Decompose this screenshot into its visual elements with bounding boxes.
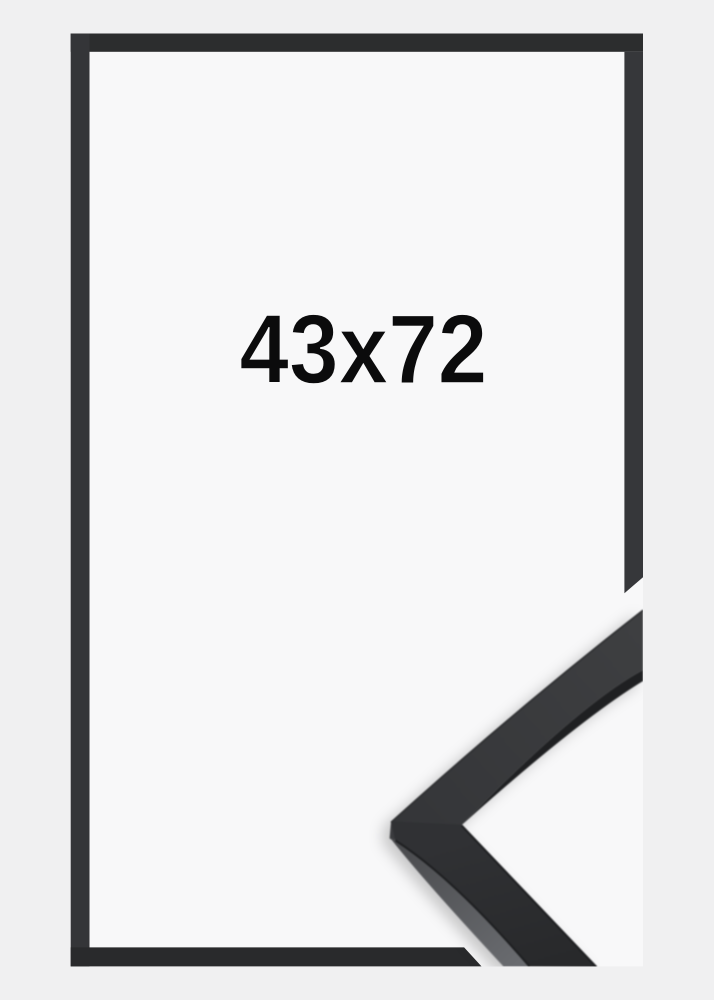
svg-text:43x72: 43x72 — [239, 294, 487, 404]
